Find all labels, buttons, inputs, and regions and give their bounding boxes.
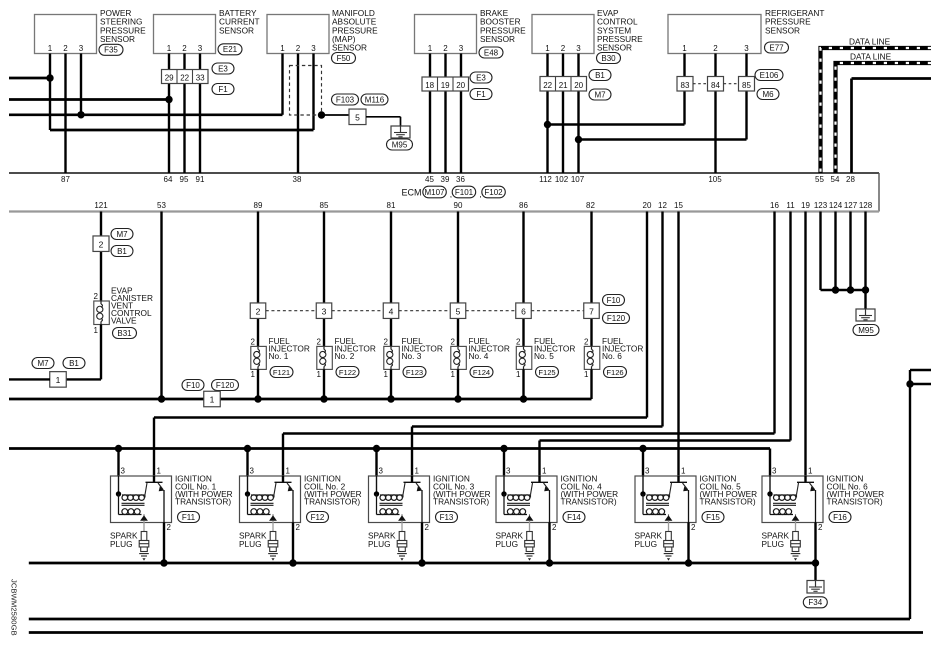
- svg-text:3: 3: [121, 467, 126, 476]
- svg-text:PLUG: PLUG: [496, 539, 519, 549]
- svg-text:16: 16: [770, 201, 779, 210]
- svg-text:2: 2: [167, 523, 172, 532]
- svg-text:64: 64: [164, 175, 173, 184]
- svg-text:No. 1: No. 1: [269, 351, 289, 361]
- svg-text:PLUG: PLUG: [635, 539, 658, 549]
- svg-text:No. 2: No. 2: [335, 351, 355, 361]
- svg-text:1: 1: [384, 370, 389, 379]
- svg-text:28: 28: [846, 175, 855, 184]
- svg-text:F122: F122: [339, 368, 356, 377]
- svg-text:SENSOR: SENSOR: [597, 43, 632, 53]
- svg-text:3: 3: [744, 44, 749, 53]
- svg-text:3: 3: [459, 44, 464, 53]
- svg-text:21: 21: [559, 81, 568, 90]
- svg-text:2: 2: [443, 44, 448, 53]
- svg-text:5: 5: [355, 112, 360, 122]
- svg-text:M107: M107: [424, 188, 445, 197]
- svg-text:E3: E3: [218, 64, 228, 73]
- svg-text:TRANSISTOR): TRANSISTOR): [175, 497, 231, 507]
- svg-text:E106: E106: [760, 71, 779, 80]
- svg-text:PLUG: PLUG: [762, 539, 785, 549]
- svg-text:F13: F13: [440, 513, 454, 522]
- svg-text:1: 1: [516, 370, 521, 379]
- svg-text:2: 2: [251, 338, 256, 347]
- svg-text:M6: M6: [762, 90, 774, 99]
- svg-text:20: 20: [574, 81, 583, 90]
- svg-text:No. 4: No. 4: [469, 351, 489, 361]
- svg-text:F35: F35: [104, 46, 118, 55]
- svg-text:F10: F10: [186, 381, 200, 390]
- svg-text:2: 2: [296, 523, 301, 532]
- svg-text:2: 2: [451, 338, 456, 347]
- svg-text:PLUG: PLUG: [110, 539, 133, 549]
- svg-text:F1: F1: [476, 90, 486, 99]
- svg-text:B1: B1: [69, 359, 79, 368]
- svg-text:3: 3: [576, 44, 581, 53]
- svg-text:127: 127: [844, 201, 858, 210]
- svg-text:M7: M7: [116, 230, 128, 239]
- svg-text:105: 105: [708, 175, 722, 184]
- svg-text:2: 2: [99, 239, 104, 249]
- svg-text:19: 19: [801, 201, 810, 210]
- svg-text:B31: B31: [117, 329, 132, 338]
- svg-text:E3: E3: [476, 73, 486, 82]
- svg-text:DATA LINE: DATA LINE: [849, 37, 891, 47]
- svg-text:3: 3: [250, 467, 255, 476]
- svg-text:SENSOR: SENSOR: [332, 43, 367, 53]
- svg-text:F15: F15: [706, 513, 720, 522]
- svg-text:2: 2: [384, 338, 389, 347]
- svg-text:15: 15: [674, 201, 683, 210]
- svg-text:121: 121: [94, 201, 108, 210]
- svg-text:1: 1: [682, 44, 687, 53]
- svg-text:No. 6: No. 6: [602, 351, 622, 361]
- svg-text:124: 124: [829, 201, 843, 210]
- svg-text:TRANSISTOR): TRANSISTOR): [304, 497, 360, 507]
- svg-text:1: 1: [451, 370, 456, 379]
- svg-text:82: 82: [586, 201, 595, 210]
- svg-text:18: 18: [425, 81, 434, 90]
- svg-text:2: 2: [256, 306, 261, 316]
- svg-text:22: 22: [180, 74, 189, 83]
- svg-text:85: 85: [320, 201, 329, 210]
- svg-text:PLUG: PLUG: [368, 539, 391, 549]
- svg-text:M95: M95: [392, 140, 408, 149]
- svg-text:2: 2: [63, 44, 68, 53]
- svg-text:No. 5: No. 5: [534, 351, 554, 361]
- svg-text:83: 83: [681, 81, 690, 90]
- svg-text:95: 95: [180, 175, 189, 184]
- svg-text:TRANSISTOR): TRANSISTOR): [700, 497, 756, 507]
- svg-text:M95: M95: [858, 326, 874, 335]
- svg-text:F101: F101: [455, 188, 474, 197]
- svg-text:90: 90: [454, 201, 463, 210]
- svg-text:36: 36: [456, 175, 465, 184]
- svg-text:29: 29: [165, 74, 174, 83]
- svg-text:54: 54: [831, 175, 840, 184]
- svg-text:12: 12: [658, 201, 667, 210]
- svg-text:87: 87: [61, 175, 70, 184]
- svg-text:SENSOR: SENSOR: [765, 25, 800, 35]
- svg-text:1: 1: [542, 467, 547, 476]
- svg-text:55: 55: [815, 175, 824, 184]
- svg-text:1: 1: [545, 44, 550, 53]
- svg-text:2: 2: [182, 44, 187, 53]
- svg-text:39: 39: [441, 175, 450, 184]
- svg-text:128: 128: [859, 201, 873, 210]
- svg-text:E21: E21: [223, 45, 238, 54]
- svg-text:F123: F123: [406, 368, 423, 377]
- svg-text:PLUG: PLUG: [239, 539, 262, 549]
- svg-text:F126: F126: [606, 368, 623, 377]
- svg-text:F1: F1: [218, 85, 228, 94]
- svg-text:11: 11: [786, 201, 795, 210]
- svg-text:1: 1: [317, 370, 322, 379]
- svg-text:1: 1: [210, 395, 215, 405]
- svg-text:20: 20: [456, 81, 465, 90]
- svg-text:3: 3: [379, 467, 384, 476]
- svg-text:22: 22: [543, 81, 552, 90]
- svg-text:3: 3: [322, 306, 327, 316]
- svg-text:19: 19: [441, 81, 450, 90]
- svg-text:TRANSISTOR): TRANSISTOR): [433, 497, 489, 507]
- svg-text:1: 1: [286, 467, 291, 476]
- svg-text:1: 1: [48, 44, 53, 53]
- svg-text:B1: B1: [595, 71, 605, 80]
- svg-text:TRANSISTOR): TRANSISTOR): [827, 497, 883, 507]
- svg-text:JCBWM2580GB: JCBWM2580GB: [10, 579, 19, 636]
- svg-text:53: 53: [157, 201, 166, 210]
- svg-text:F120: F120: [607, 314, 626, 323]
- svg-text:107: 107: [571, 175, 585, 184]
- svg-text:2: 2: [296, 44, 301, 53]
- svg-text:3: 3: [79, 44, 84, 53]
- svg-text:B1: B1: [117, 247, 127, 256]
- svg-text:SENSOR: SENSOR: [480, 34, 515, 44]
- svg-text:20: 20: [643, 201, 652, 210]
- svg-text:3: 3: [311, 44, 316, 53]
- svg-text:M116: M116: [365, 95, 385, 104]
- svg-text:F102: F102: [484, 188, 503, 197]
- svg-text:45: 45: [425, 175, 434, 184]
- svg-text:VALVE: VALVE: [111, 316, 137, 326]
- svg-text:1: 1: [157, 467, 162, 476]
- svg-text:89: 89: [254, 201, 263, 210]
- svg-text:1: 1: [56, 375, 61, 385]
- svg-text:1: 1: [94, 326, 99, 335]
- svg-text:F103: F103: [336, 95, 355, 104]
- svg-text:38: 38: [293, 175, 302, 184]
- svg-text:112: 112: [539, 175, 552, 184]
- svg-text:2: 2: [425, 523, 430, 532]
- svg-text:2: 2: [713, 44, 718, 53]
- svg-text:ECM: ECM: [402, 188, 422, 198]
- svg-text:,: ,: [479, 189, 481, 199]
- svg-text:4: 4: [389, 306, 394, 316]
- svg-text:7: 7: [589, 306, 594, 316]
- svg-text:1: 1: [808, 467, 813, 476]
- svg-text:2: 2: [584, 338, 589, 347]
- svg-text:6: 6: [521, 306, 526, 316]
- svg-text:1: 1: [681, 467, 686, 476]
- svg-text:F16: F16: [833, 513, 847, 522]
- svg-text:F10: F10: [607, 296, 621, 305]
- svg-text:DATA LINE: DATA LINE: [850, 52, 892, 62]
- svg-text:81: 81: [387, 201, 396, 210]
- svg-text:91: 91: [196, 175, 205, 184]
- svg-text:2: 2: [317, 338, 322, 347]
- svg-text:2: 2: [818, 523, 823, 532]
- svg-text:3: 3: [772, 467, 777, 476]
- svg-text:123: 123: [814, 201, 828, 210]
- svg-text:SENSOR: SENSOR: [100, 34, 135, 44]
- svg-text:2: 2: [691, 523, 696, 532]
- svg-text:B30: B30: [601, 54, 616, 63]
- svg-text:3: 3: [198, 44, 203, 53]
- svg-text:SENSOR: SENSOR: [219, 25, 254, 35]
- svg-text:3: 3: [645, 467, 650, 476]
- svg-text:1: 1: [251, 370, 256, 379]
- svg-text:86: 86: [519, 201, 528, 210]
- svg-text:33: 33: [196, 74, 205, 83]
- svg-text:2: 2: [552, 523, 557, 532]
- svg-text:1: 1: [167, 44, 172, 53]
- svg-text:F125: F125: [538, 368, 555, 377]
- svg-text:2: 2: [516, 338, 521, 347]
- svg-text:5: 5: [456, 306, 461, 316]
- svg-text:3: 3: [506, 467, 511, 476]
- svg-text:F14: F14: [567, 513, 581, 522]
- svg-text:1: 1: [428, 44, 433, 53]
- svg-text:,: ,: [450, 189, 452, 199]
- svg-text:F50: F50: [337, 54, 351, 63]
- svg-text:M7: M7: [37, 359, 49, 368]
- svg-text:2: 2: [561, 44, 566, 53]
- svg-text:1: 1: [584, 370, 589, 379]
- svg-text:No. 3: No. 3: [402, 351, 422, 361]
- svg-text:F120: F120: [216, 381, 235, 390]
- svg-text:85: 85: [742, 81, 751, 90]
- svg-text:1: 1: [415, 467, 420, 476]
- svg-text:102: 102: [555, 175, 569, 184]
- svg-text:F121: F121: [273, 368, 290, 377]
- svg-text:TRANSISTOR): TRANSISTOR): [561, 497, 617, 507]
- svg-text:F34: F34: [808, 598, 822, 607]
- svg-text:1: 1: [280, 44, 285, 53]
- svg-text:F12: F12: [311, 513, 325, 522]
- svg-text:E48: E48: [484, 48, 499, 57]
- svg-text:2: 2: [94, 292, 99, 301]
- svg-text:84: 84: [711, 81, 720, 90]
- svg-text:F124: F124: [473, 368, 490, 377]
- svg-text:M7: M7: [594, 90, 606, 99]
- svg-text:E77: E77: [769, 43, 784, 52]
- svg-text:F11: F11: [182, 513, 196, 522]
